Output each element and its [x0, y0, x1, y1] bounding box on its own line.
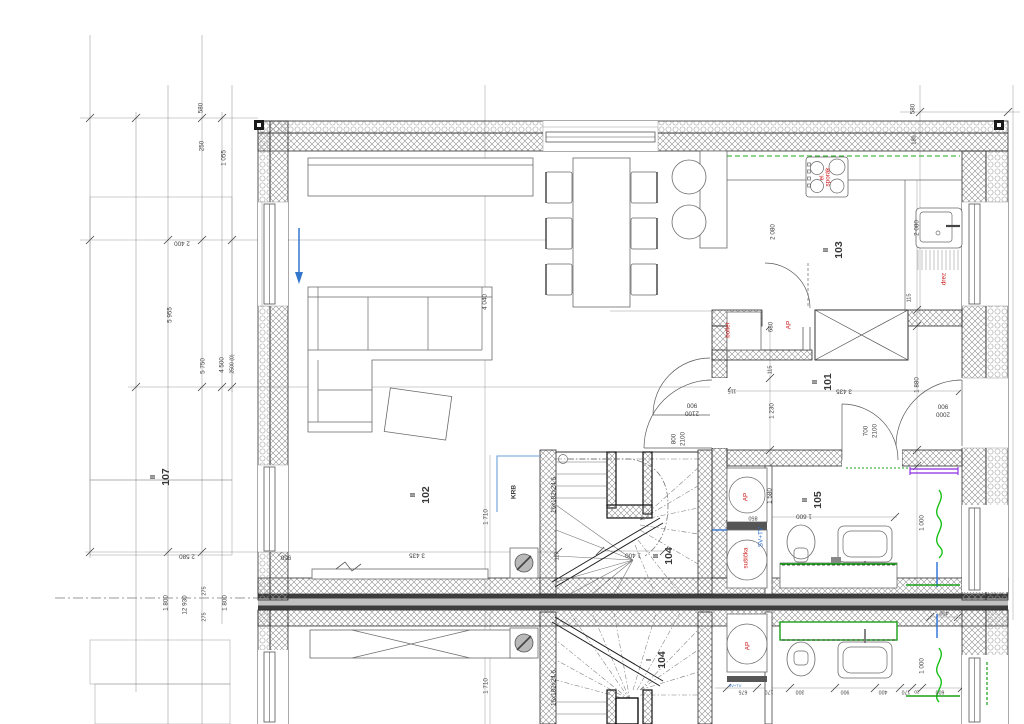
window-right-bath [962, 505, 1008, 592]
door-size-label: 700 [863, 425, 870, 436]
coffee-table [384, 388, 452, 440]
dim-label: 680 [768, 321, 775, 332]
shower-drain-squiggle [937, 490, 942, 558]
furniture-living [295, 151, 727, 579]
door-size-label: 900 [686, 401, 697, 408]
dim-label: 2 080 [914, 220, 921, 236]
wall-hall-bath [727, 450, 842, 466]
shower [906, 490, 960, 587]
door-size-label: 2100 [685, 409, 700, 416]
dim-label: 600 [936, 689, 945, 695]
kitchen-sink [916, 208, 962, 270]
dim-label: 170 [902, 689, 911, 695]
window-right-unit1 [962, 655, 1008, 724]
stair-wall-right [698, 450, 712, 594]
bar-stool [672, 160, 706, 194]
unit-one-lower [310, 613, 987, 724]
stair-wall-left-lower [540, 612, 556, 724]
wall-hall-bath [902, 450, 962, 466]
stair-wall-left [540, 450, 556, 594]
toilet-lower [787, 642, 815, 676]
dim-label: 5 955 [167, 307, 174, 323]
staircase-upper [552, 452, 698, 594]
boiler [727, 312, 761, 350]
dim-label: 1 800 [222, 595, 229, 611]
dim-label: 850 [748, 515, 757, 521]
dim-label: 2 580 [179, 552, 195, 559]
dim-label: 1 580 [767, 488, 774, 504]
kitchen [727, 156, 962, 312]
appliance-label: AP [745, 642, 752, 650]
dim-label: 20 [914, 689, 920, 695]
fireplace-label: KRB [511, 485, 518, 499]
tv-bench [312, 569, 488, 579]
dim-label: 115 [906, 294, 912, 303]
door-size-label: 2000 [936, 410, 951, 417]
room-unit-label: II [810, 380, 819, 384]
room-number-label: 101 [822, 373, 834, 391]
dim-label: 580 [910, 103, 917, 114]
door-hall-second [653, 358, 710, 415]
plumbing-label: SV+TV [729, 683, 742, 688]
room-unit-label: II [821, 248, 830, 252]
fireplace [497, 456, 540, 512]
window-left-unit1 [258, 650, 288, 724]
room-number-label: 104 [656, 651, 668, 669]
room-unit-label: II [651, 554, 660, 558]
bar-stool [672, 205, 706, 239]
wall-kitchen-hall [908, 310, 962, 326]
dim-label: 400 [939, 610, 948, 616]
stair-rail [552, 518, 663, 587]
plumbing-label: SV+TV [758, 526, 765, 547]
dim-label: 115 [728, 388, 737, 394]
radiator [846, 467, 958, 475]
dim-label: 117 [554, 552, 560, 561]
dim-label: 900 [841, 689, 850, 695]
door-size-label: 900 [937, 402, 948, 409]
door-size-label: 800 [671, 433, 678, 444]
room-unit-label: II [148, 475, 157, 479]
window-left-upper [258, 202, 288, 306]
dim-label: 3 435 [409, 551, 425, 558]
tub-faucet [831, 557, 841, 563]
room-unit-label: II [408, 493, 417, 497]
dim-label: 275 [201, 612, 207, 621]
dim-label: 1 600 [796, 512, 812, 519]
toilet [787, 525, 815, 562]
wall-tech-closet [712, 350, 812, 360]
shaft-chimney [815, 310, 908, 360]
dim-label: 1 710 [483, 678, 490, 694]
neighbor-outlines [90, 197, 232, 724]
room-number-label: 104 [663, 547, 675, 565]
stair-core [607, 452, 652, 518]
dim-label: 170 [765, 689, 774, 695]
dim-label: 400 [879, 689, 888, 695]
floor-plan-drawing: architectural floor plan, two mirrored d… [0, 0, 1024, 724]
appliance-label: AP [743, 493, 750, 501]
bar-counter [700, 151, 727, 248]
tech-closet [727, 312, 761, 350]
window-top [543, 121, 658, 151]
dim-label: 950 [280, 553, 291, 560]
appliance-label: boiler [725, 322, 732, 337]
dim-label: 1 000 [919, 515, 926, 531]
room-number-label: 105 [812, 491, 824, 509]
room-number-label: 102 [420, 486, 432, 504]
entry-direction-arrow [295, 228, 303, 284]
wall-living-hall [712, 448, 727, 578]
stair-spec-label: 16x182x24,6 [551, 669, 558, 706]
dining-table [573, 158, 630, 307]
appliance-label: sporák [825, 167, 832, 187]
window-left-lower [258, 465, 288, 552]
dim-label: 3 435 [836, 387, 852, 394]
floor-plan-page: architectural floor plan, two mirrored d… [0, 0, 1024, 724]
staircase-lower [552, 613, 698, 724]
dim-label: 1 880 [914, 377, 921, 393]
room-unit-label: I [644, 659, 653, 661]
room-unit-label: II [800, 498, 809, 502]
dim-label: 2 400 [174, 239, 190, 246]
dim-label: 115 [767, 366, 773, 375]
door-size-label: 2100 [680, 432, 687, 447]
dim-label: 180 [911, 135, 917, 144]
door-size-label: 2100 [872, 424, 879, 439]
appliance-label: AP [786, 321, 793, 329]
dim-label: 250 [199, 140, 206, 151]
dim-label: 275 [201, 586, 207, 595]
dim-label: 580 [198, 102, 205, 113]
dim-label: 1 055 [221, 150, 228, 166]
dim-label: 1 800 [163, 595, 170, 611]
appliance-label: sušička [743, 547, 750, 568]
dim-label: 1 000 [919, 658, 926, 674]
vanity-counter-lower [780, 622, 897, 640]
dim-label: 4 500 [219, 357, 226, 373]
stair-spec-label: 16x182x24,6 [551, 476, 558, 513]
dim-label: 5 750 [200, 358, 207, 374]
window-right-kitchen [962, 202, 1008, 306]
sideboard [308, 158, 533, 196]
floor-drain-symbol [510, 548, 538, 578]
dim-label: 4 040 [482, 294, 489, 310]
dim-label: 675 [739, 689, 748, 695]
dim-label: 1 710 [483, 509, 490, 525]
dim-label: 300 [796, 689, 805, 695]
dim-label: 12 930 [182, 595, 189, 615]
dim-label: 1 230 [769, 403, 776, 419]
dim-label: 2500 (0) [229, 354, 235, 374]
dim-label: 2 080 [770, 224, 777, 240]
stair-wall-right-lower [698, 612, 712, 724]
room-number-label: 107 [160, 468, 172, 486]
wardrobe-lower [310, 630, 533, 658]
dim-label: 1 400 [625, 551, 641, 558]
floor-drain-symbol-lower [510, 628, 538, 658]
door-kitchen-hall [763, 263, 811, 327]
room-number-label: 103 [833, 241, 845, 259]
doors [644, 263, 1008, 467]
appliance-label: drez [941, 273, 948, 285]
